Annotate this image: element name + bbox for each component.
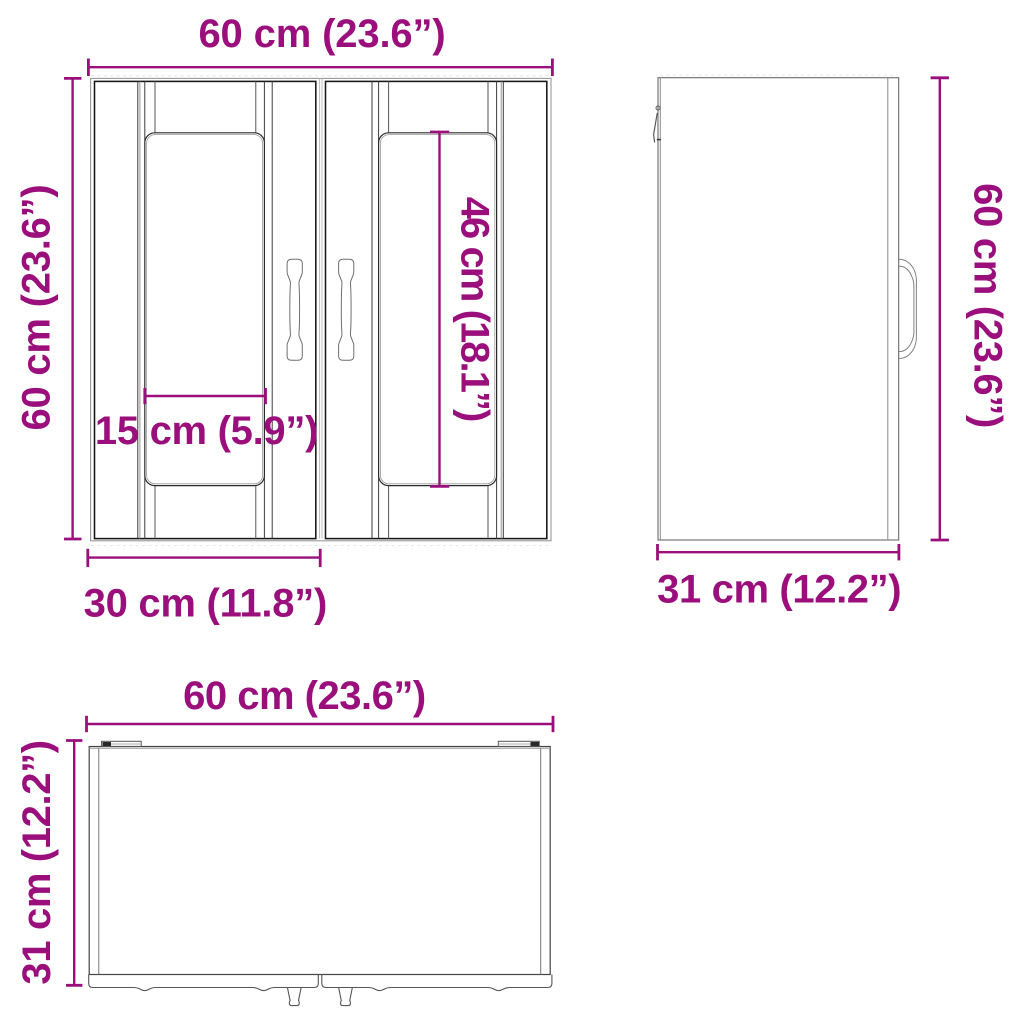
svg-text:60 cm (23.6”): 60 cm (23.6”) [966,183,1010,428]
svg-text:30 cm (11.8”): 30 cm (11.8”) [84,581,327,625]
svg-text:60 cm (23.6”): 60 cm (23.6”) [14,184,58,430]
svg-text:60 cm (23.6”): 60 cm (23.6”) [183,674,426,718]
svg-text:31 cm (12.2”): 31 cm (12.2”) [657,568,901,612]
svg-text:46 cm (18.1”): 46 cm (18.1”) [453,197,497,421]
svg-text:60 cm (23.6”): 60 cm (23.6”) [198,12,445,56]
svg-text:15 cm (5.9”): 15 cm (5.9”) [95,409,318,453]
svg-text:31 cm (12.2”): 31 cm (12.2”) [15,740,59,984]
